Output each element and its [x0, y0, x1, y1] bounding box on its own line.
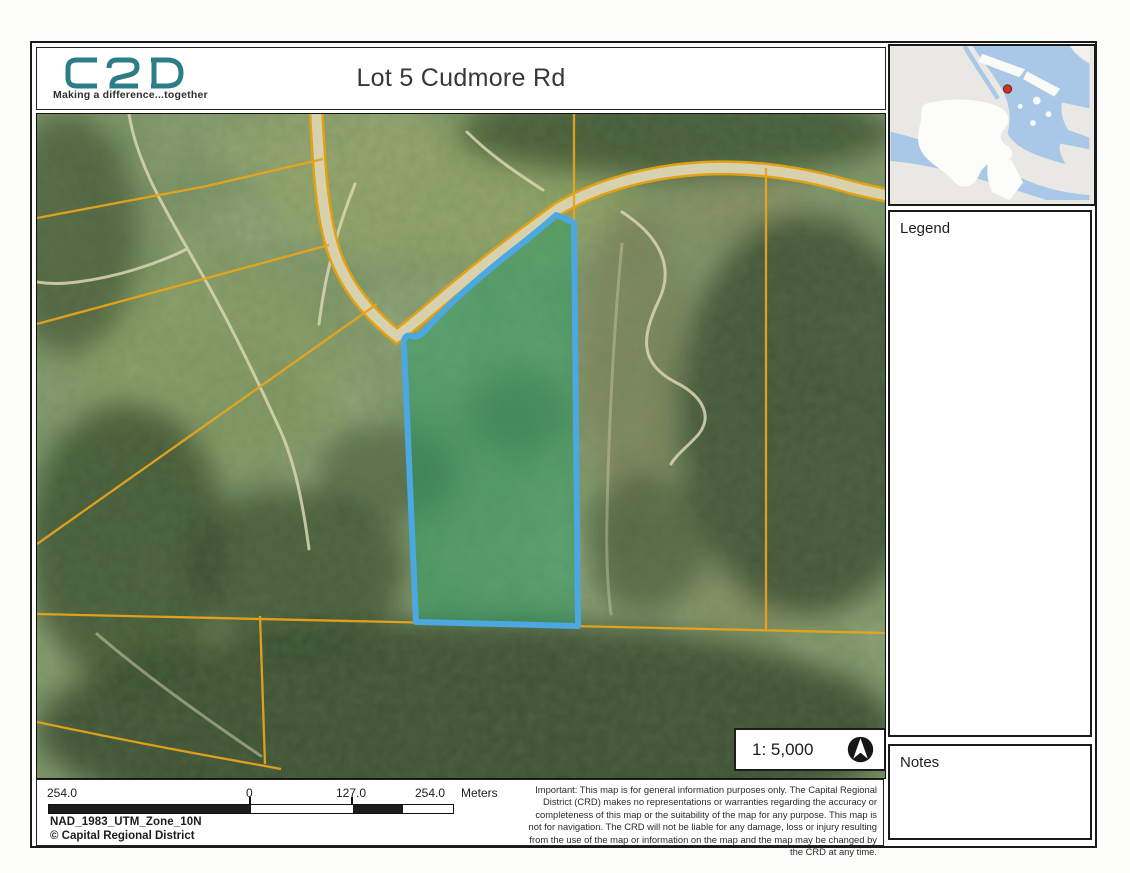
- scalebar-tick: [249, 797, 251, 804]
- location-marker: [1003, 85, 1011, 93]
- map-footer: 254.0 0 127.0 254.0 Meters NAD_1983_UTM_…: [36, 779, 884, 846]
- scalebar-label-left: 254.0: [47, 786, 77, 800]
- scalebar-tick: [351, 797, 353, 804]
- copyright-text: © Capital Regional District: [50, 830, 195, 842]
- north-arrow-icon: [846, 735, 875, 764]
- scalebar: [48, 804, 454, 814]
- location-inset-map: [888, 44, 1096, 206]
- notes-panel: Notes: [888, 744, 1092, 840]
- disclaimer-text: Important: This map is for general infor…: [521, 784, 877, 858]
- inset-map-graphic: [890, 46, 1090, 200]
- scale-indicator: 1: 5,000: [734, 728, 886, 771]
- legend-title: Legend: [890, 212, 1090, 237]
- scalebar-segment: [251, 805, 353, 813]
- datum-text: NAD_1983_UTM_Zone_10N: [50, 816, 202, 828]
- scalebar-segment: [403, 805, 453, 813]
- scalebar-units: Meters: [461, 786, 498, 800]
- map-frame: 1: 5,000: [36, 113, 886, 779]
- notes-title: Notes: [890, 746, 1090, 771]
- scalebar-segment: [49, 805, 251, 813]
- legend-panel: Legend: [888, 210, 1092, 737]
- page-title: Lot 5 Cudmore Rd: [37, 48, 885, 109]
- scalebar-label-right: 254.0: [415, 786, 445, 800]
- aerial-map: [37, 114, 885, 778]
- header: CRD Making a difference...together Lot 5…: [36, 47, 886, 110]
- scalebar-segment: [353, 805, 403, 813]
- scale-text: 1: 5,000: [752, 740, 846, 760]
